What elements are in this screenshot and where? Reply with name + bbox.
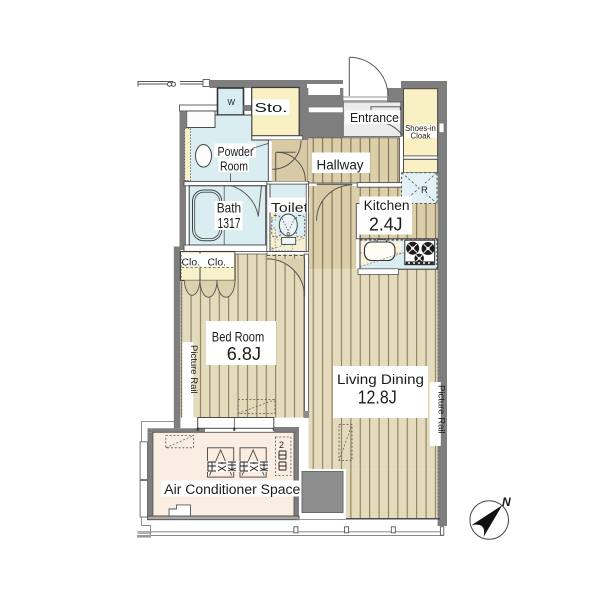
svg-text:Bath: Bath [217, 200, 242, 216]
svg-text:2.4J: 2.4J [369, 215, 403, 235]
svg-text:Hallway: Hallway [317, 158, 364, 173]
svg-text:N: N [502, 495, 511, 509]
svg-text:Toilet: Toilet [271, 200, 308, 215]
svg-text:Sto.: Sto. [255, 100, 288, 115]
svg-text:Cloak: Cloak [411, 132, 431, 141]
svg-text:1317: 1317 [218, 215, 241, 232]
svg-text:R: R [421, 185, 428, 196]
svg-text:Clo.: Clo. [182, 257, 201, 269]
svg-text:Kitchen: Kitchen [364, 198, 410, 213]
svg-text:Room: Room [220, 159, 248, 174]
svg-text:Clo.: Clo. [208, 257, 227, 269]
svg-text:Air Conditioner Space: Air Conditioner Space [164, 482, 300, 497]
svg-text:2: 2 [279, 440, 284, 450]
svg-text:Powder: Powder [218, 144, 255, 159]
svg-text:W: W [228, 98, 236, 107]
svg-text:Picture Rail: Picture Rail [436, 385, 447, 434]
svg-text:Bed Room: Bed Room [212, 330, 264, 345]
svg-text:12.8J: 12.8J [358, 388, 397, 408]
svg-text:Picture Rail: Picture Rail [188, 345, 199, 394]
svg-text:6.8J: 6.8J [227, 344, 261, 364]
svg-text:Living Dining: Living Dining [337, 371, 424, 387]
svg-text:Entrance: Entrance [350, 110, 399, 125]
